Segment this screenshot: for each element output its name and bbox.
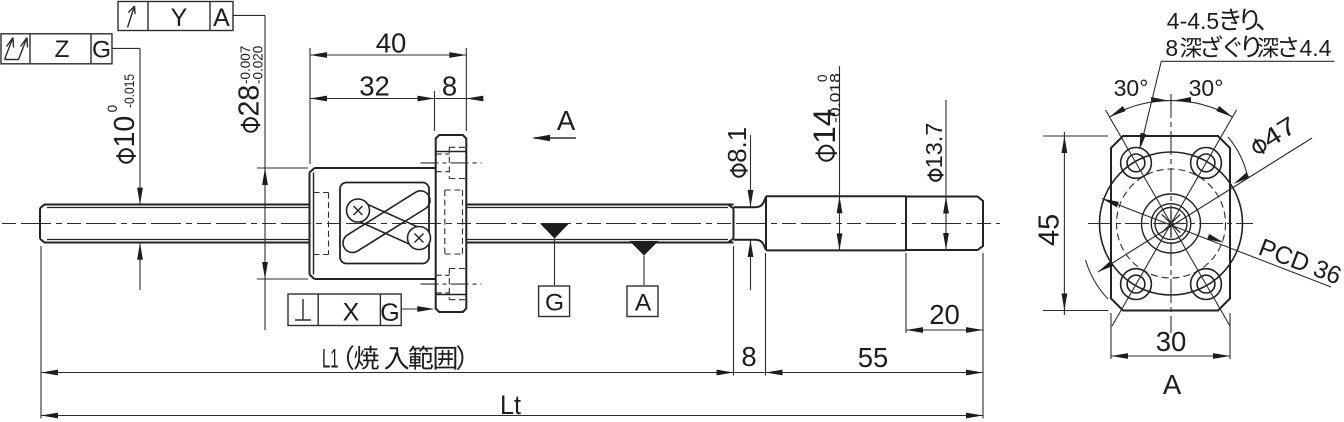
svg-text:8.1: 8.1 xyxy=(722,127,752,163)
svg-text:20: 20 xyxy=(929,299,960,330)
svg-text:A: A xyxy=(1163,369,1182,400)
svg-text:Z: Z xyxy=(55,36,70,63)
svg-text:10: 10 xyxy=(109,116,141,148)
svg-text:40: 40 xyxy=(376,28,407,59)
svg-text:8: 8 xyxy=(1165,35,1178,61)
svg-text:Y: Y xyxy=(171,4,188,32)
svg-text:G: G xyxy=(545,290,564,317)
svg-text:A: A xyxy=(557,105,576,136)
svg-text:45: 45 xyxy=(1034,214,1066,246)
svg-text:A: A xyxy=(635,290,652,317)
svg-text:X: X xyxy=(343,299,360,327)
svg-text:-0.018: -0.018 xyxy=(827,73,844,123)
svg-text:4.4: 4.4 xyxy=(1300,35,1332,61)
svg-text:8: 8 xyxy=(442,71,457,102)
svg-text:55: 55 xyxy=(858,342,889,373)
svg-text:13.7: 13.7 xyxy=(921,123,947,169)
svg-text:8: 8 xyxy=(741,341,756,372)
svg-text:0: 0 xyxy=(105,105,120,113)
svg-text:30°: 30° xyxy=(1189,75,1224,101)
svg-text:32: 32 xyxy=(359,71,390,102)
svg-text:-0.015: -0.015 xyxy=(122,74,137,108)
svg-text:28: 28 xyxy=(234,85,266,117)
svg-text:G: G xyxy=(92,37,111,64)
svg-text:30: 30 xyxy=(1156,326,1187,357)
svg-text:G: G xyxy=(380,299,399,327)
svg-text:Lt: Lt xyxy=(500,390,521,420)
svg-text:L1: L1 xyxy=(322,343,339,373)
svg-text:4-4.5: 4-4.5 xyxy=(1167,8,1219,34)
svg-text:30°: 30° xyxy=(1114,75,1149,101)
svg-text:A: A xyxy=(213,4,230,32)
svg-text:-0.020: -0.020 xyxy=(250,46,265,84)
